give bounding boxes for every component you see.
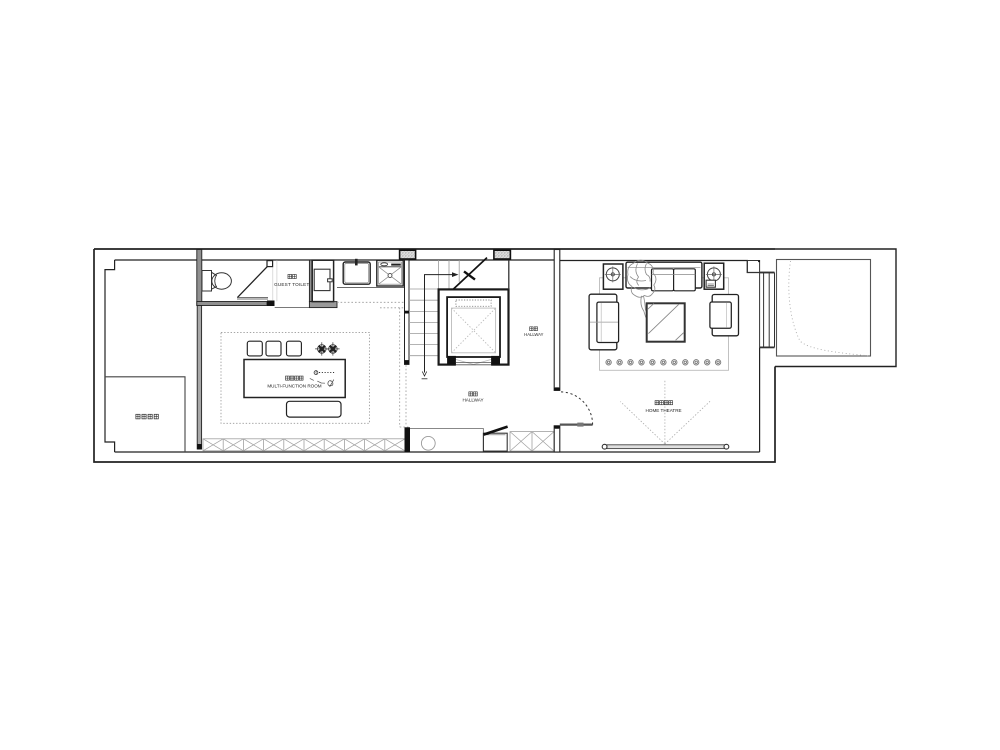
svg-text:HOME THEATRE: HOME THEATRE bbox=[646, 408, 682, 413]
svg-text:HALLWAY: HALLWAY bbox=[462, 398, 483, 403]
svg-text:HALLWAY: HALLWAY bbox=[524, 332, 543, 337]
svg-text:GUEST TOILET: GUEST TOILET bbox=[274, 282, 309, 287]
svg-text:MULTI-FUNCTION ROOM: MULTI-FUNCTION ROOM bbox=[267, 384, 321, 389]
